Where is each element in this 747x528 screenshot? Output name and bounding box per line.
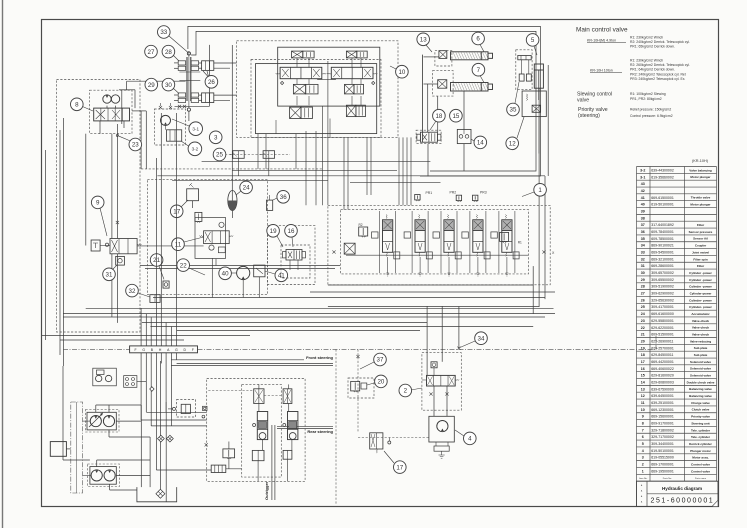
svg-text:9: 9 [642,415,644,419]
svg-text:Tele. cylinder: Tele. cylinder [691,435,711,439]
svg-text:609-91700001: 609-91700001 [651,422,674,426]
svg-text:Clutch valve: Clutch valve [692,408,710,412]
svg-text:3: 3 [214,135,218,142]
svg-text:Motor assy.: Motor assy. [692,456,709,460]
svg-text:33: 33 [160,29,167,36]
svg-text:Sensor Ail: Sensor Ail [693,237,708,241]
svg-text:Double check valve: Double check valve [687,380,715,384]
svg-text:9: 9 [96,200,100,207]
svg-text:12: 12 [641,394,645,398]
svg-text:669-61600000: 669-61600000 [651,312,674,316]
svg-text:23: 23 [132,142,139,149]
svg-text:Valve balancing: Valve balancing [689,168,712,172]
svg-text:639-64500001: 639-64500001 [651,394,674,398]
svg-text:329-71700002: 329-71700002 [651,435,674,439]
svg-text:309-51900002: 309-51900002 [651,285,674,289]
svg-text:Sub plate: Sub plate [694,353,708,357]
svg-text:Tele. cylinder: Tele. cylinder [691,428,711,432]
svg-text:Sub plate: Sub plate [694,346,708,350]
svg-text:20: 20 [377,379,384,386]
svg-text:valve: valve [577,98,589,104]
svg-text:2: 2 [642,463,644,467]
svg-text:17: 17 [641,360,645,364]
svg-text:R2: 240kg/cm2 Derrick. Telesc: R2: 240kg/cm2 Derrick. Telescopick cyl. [630,40,690,44]
svg-text:Coupler: Coupler [695,244,707,248]
svg-text:PR2: 240kg/cm2 Telescopick cy: PR2: 240kg/cm2 Telescopick cyl. Ret [630,72,686,76]
svg-text:639-67590000: 639-67590000 [651,387,674,391]
svg-text:669-12300001: 669-12300001 [651,408,674,412]
svg-text:21: 21 [641,333,645,337]
svg-text:Outrigger: Outrigger [264,481,269,500]
svg-text:Filter: Filter [697,223,705,227]
svg-text:R1: 230kg/cm2 Winch: R1: 230kg/cm2 Winch [630,59,663,63]
svg-text:Parts name: Parts name [695,477,707,480]
svg-text:30: 30 [641,271,645,275]
svg-text:Joint swivel: Joint swivel [692,250,709,254]
svg-text:Filter: Filter [697,264,705,268]
svg-text:G: G [142,348,145,352]
svg-text:Hydraulic diagram: Hydraulic diagram [662,486,702,491]
svg-text:609-78500001: 609-78500001 [651,237,674,241]
svg-text:37: 37 [641,223,645,227]
svg-text:Filter spin: Filter spin [693,257,708,261]
svg-text:30: 30 [165,82,172,89]
svg-text:619-05515000: 619-05515000 [651,456,674,460]
svg-text:36: 36 [641,230,645,234]
svg-text:24: 24 [243,185,250,192]
svg-text:317-64001892: 317-64001892 [651,223,674,227]
svg-text:Cylinder- power: Cylinder- power [689,305,713,309]
svg-text:29: 29 [641,278,645,282]
svg-text:PR1, PR2: 80kg/cm2: PR1, PR2: 80kg/cm2 [630,97,662,101]
svg-text:13: 13 [641,387,645,391]
svg-text:309-62900002: 309-62900002 [651,292,674,296]
svg-text:R1: 100kg/cm2 Slewing: R1: 100kg/cm2 Slewing [630,92,666,96]
svg-text:629-84500011: 629-84500011 [651,353,673,357]
svg-text:619-50100001: 619-50100001 [651,449,674,453]
svg-text:34: 34 [478,335,485,342]
svg-text:Motor plunger: Motor plunger [690,203,711,207]
svg-text:12: 12 [509,141,516,148]
svg-text:36: 36 [280,194,287,201]
svg-text:669-17000001: 669-17000001 [651,463,674,467]
svg-text:669-15600001: 669-15600001 [651,415,674,419]
svg-text:3-2: 3-2 [192,146,199,151]
svg-text:28: 28 [165,49,172,56]
svg-text:8: 8 [642,422,644,426]
svg-text:34: 34 [641,244,645,248]
svg-text:639-25100001: 639-25100001 [651,401,674,405]
svg-text:31: 31 [106,272,113,279]
svg-text:20: 20 [641,339,645,343]
svg-text:10: 10 [641,408,645,412]
svg-text:17: 17 [396,464,403,471]
svg-text:669-28600001: 669-28600001 [651,264,674,268]
svg-text:Solenoid valve: Solenoid valve [690,374,711,378]
svg-text:17: 17 [173,209,180,216]
svg-text:Cylinder -power: Cylinder -power [689,285,713,289]
svg-text:Motor plunger: Motor plunger [690,175,711,179]
svg-text:Cylinder -power: Cylinder -power [689,278,713,282]
svg-text:639-44300002: 639-44300002 [651,168,674,172]
svg-text:629-26900011: 629-26900011 [651,339,673,343]
svg-text:5: 5 [531,37,535,44]
svg-text:Valve-check: Valve-check [692,333,710,337]
svg-text:40: 40 [222,271,229,278]
svg-text:3-1: 3-1 [640,175,645,179]
svg-text:KR-10H 10ton: KR-10H 10ton [590,69,613,73]
svg-text:Relief pressure: 150kg/cm2: Relief pressure: 150kg/cm2 [630,108,671,112]
svg-text:1: 1 [642,469,644,473]
svg-text:PR1: PR1 [426,191,433,195]
svg-text:Balancing valve: Balancing valve [689,387,712,391]
svg-text:869-90100021: 869-90100021 [651,244,674,248]
svg-text:Cylinder- power: Cylinder- power [689,298,713,302]
svg-text:26: 26 [641,298,645,302]
svg-text:Balancing valve: Balancing valve [689,394,712,398]
svg-text:G: G [175,348,178,352]
svg-text:1: 1 [538,187,542,194]
svg-text:40: 40 [641,203,645,207]
svg-text:4: 4 [468,436,472,443]
svg-text:PR1: 64kg/cm2 Derrick down.: PR1: 64kg/cm2 Derrick down. [630,68,675,72]
svg-text:21: 21 [153,257,160,264]
svg-text:669-19500001: 669-19500001 [651,469,674,473]
svg-text:(steering): (steering) [578,113,600,119]
svg-text:25: 25 [641,305,645,309]
svg-text:629-81600020: 629-81600020 [651,374,674,378]
svg-text:28: 28 [641,285,645,289]
svg-text:Derrick cylinder: Derrick cylinder [689,442,713,446]
svg-text:11: 11 [175,241,182,248]
svg-text:11: 11 [641,401,645,405]
svg-text:F: F [192,348,194,352]
svg-text:Steering unit: Steering unit [691,421,709,425]
svg-text:Rear steering: Rear steering [307,429,333,434]
svg-text:24: 24 [641,312,645,316]
svg-text:Cylinder -power: Cylinder -power [689,271,713,275]
svg-text:22: 22 [641,326,645,330]
svg-text:R1: R1 [518,241,522,245]
svg-text:(KR-10H): (KR-10H) [692,159,709,163]
svg-text:Solenoid valve: Solenoid valve [690,360,711,364]
svg-text:F: F [134,348,136,352]
svg-text:Accumulator: Accumulator [691,312,710,316]
svg-text:10: 10 [398,69,405,76]
svg-text:2: 2 [404,388,408,395]
svg-text:39: 39 [641,209,645,213]
svg-text:Item No.: Item No. [639,477,648,480]
svg-text:43: 43 [641,182,645,186]
svg-text:R2: R2 [359,223,363,227]
svg-text:29: 29 [148,82,155,89]
svg-text:3-2: 3-2 [640,168,645,172]
svg-text:25: 25 [216,152,223,159]
svg-text:Control pressure: 6.9kg/cm2: Control pressure: 6.9kg/cm2 [630,114,673,118]
svg-text:669-61500001: 669-61500001 [651,196,674,200]
svg-text:33: 33 [641,251,645,255]
svg-text:PR1: 65kg/cm2 Derrick down.: PR1: 65kg/cm2 Derrick down. [630,45,675,49]
svg-text:Control valve: Control valve [691,469,710,473]
svg-text:PR3: PR3 [480,191,487,195]
svg-text:669-32100001: 669-32100001 [651,257,674,261]
svg-text:15: 15 [452,113,459,120]
svg-text:3: 3 [642,456,644,460]
svg-text:Sensor pressure: Sensor pressure [689,230,713,234]
svg-text:Control valve: Control valve [691,462,710,466]
svg-text:27: 27 [641,292,645,296]
svg-text:6: 6 [476,36,480,43]
svg-text:3-1: 3-1 [192,126,199,131]
svg-text:Priority valve: Priority valve [691,415,710,419]
svg-text:669-40600022: 669-40600022 [651,367,674,371]
svg-text:Throttle valve: Throttle valve [691,196,711,200]
svg-text:Front steering: Front steering [306,355,333,360]
svg-text:22: 22 [180,262,187,269]
svg-text:Parts No.: Parts No. [663,477,673,480]
svg-text:R2: 260kg/cm2 Derrick. Telesc: R2: 260kg/cm2 Derrick. Telescopick cyl. [630,63,690,67]
svg-text:15: 15 [641,374,645,378]
svg-text:309-65500002: 309-65500002 [651,278,674,282]
svg-text:26: 26 [208,79,215,86]
svg-text:619-50100001: 619-50100001 [651,203,674,207]
svg-text:27: 27 [148,49,155,56]
svg-text:18: 18 [641,353,645,357]
svg-text:Charge valve: Charge valve [691,401,710,405]
svg-text:619-35660002: 619-35660002 [651,175,674,179]
svg-text:32: 32 [129,288,136,295]
svg-text:KR-10H(M) 4.9ton: KR-10H(M) 4.9ton [587,39,616,43]
svg-text:Valve-check: Valve-check [692,326,710,330]
svg-text:609-51500001: 609-51500001 [651,333,674,337]
svg-text:4: 4 [642,449,644,453]
svg-text:7: 7 [642,428,644,432]
svg-text:8: 8 [75,102,79,109]
svg-text:329-71800002: 329-71800002 [651,428,674,432]
svg-text:Plunger motor: Plunger motor [690,449,711,453]
svg-text:Valve-reducing: Valve-reducing [690,339,712,343]
svg-text:Cylinder-power: Cylinder-power [690,291,713,295]
svg-text:38: 38 [641,216,645,220]
svg-text:16: 16 [641,367,645,371]
svg-text:251-60000001: 251-60000001 [651,498,715,505]
svg-text:18: 18 [435,113,442,120]
svg-text:PR3: 240kg/cm2 Telescopick cy: PR3: 240kg/cm2 Telescopick cyl. Ex. [630,77,685,81]
svg-text:42: 42 [641,189,645,193]
svg-text:Main control valve: Main control valve [576,27,628,34]
svg-text:669-44200001: 669-44200001 [651,360,674,364]
svg-text:19: 19 [270,228,277,235]
svg-text:37: 37 [377,357,384,364]
svg-text:41: 41 [641,196,645,200]
svg-text:35: 35 [641,237,645,241]
svg-text:609-78400001: 609-78400001 [651,230,674,234]
svg-text:R1: 230kg/cm2 Winch: R1: 230kg/cm2 Winch [630,36,663,40]
svg-text:629-55800001: 629-55800001 [651,319,674,323]
svg-text:Valve-check: Valve-check [692,319,710,323]
svg-text:329-65630002: 329-65630002 [651,298,674,302]
svg-text:6: 6 [642,435,644,439]
svg-text:16: 16 [288,228,295,235]
svg-text:14: 14 [477,140,484,147]
svg-text:309-41700001: 309-41700001 [651,305,674,309]
svg-text:13: 13 [420,37,427,44]
svg-text:Solenoid valve: Solenoid valve [690,367,711,371]
svg-text:629-60800003: 629-60800003 [651,380,674,384]
svg-text:PR2: PR2 [450,191,457,195]
svg-text:309-34400001: 309-34400001 [651,442,674,446]
svg-text:41: 41 [278,273,285,280]
svg-text:629-62200001: 629-62200001 [651,326,674,330]
svg-text:5: 5 [642,442,644,446]
svg-text:309-65700002: 309-65700002 [651,271,674,275]
svg-text:23: 23 [641,319,645,323]
svg-text:35: 35 [510,107,517,114]
svg-text:669-54500001: 669-54500001 [651,251,674,255]
svg-text:31: 31 [641,264,645,268]
svg-text:32: 32 [641,257,645,261]
svg-text:7: 7 [477,67,481,74]
svg-text:14: 14 [641,380,645,384]
